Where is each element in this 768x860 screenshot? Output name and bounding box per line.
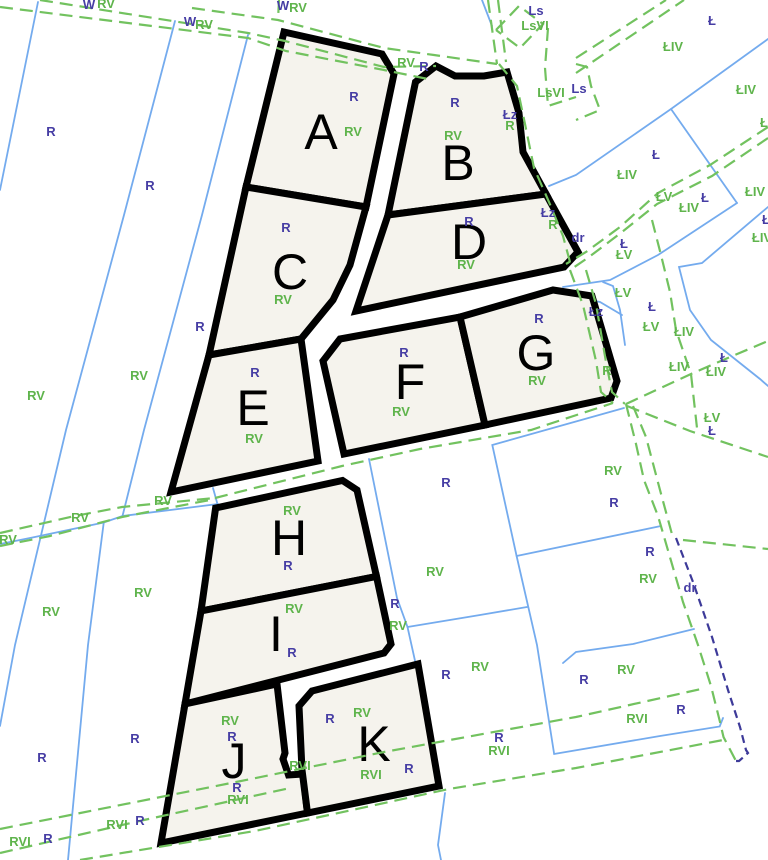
svg-text:Ł: Ł — [762, 212, 768, 227]
svg-text:RVI: RVI — [106, 817, 127, 832]
svg-text:RV: RV — [221, 713, 239, 728]
svg-text:RV: RV — [0, 532, 17, 547]
svg-text:R: R — [450, 95, 460, 110]
svg-text:R: R — [404, 761, 414, 776]
svg-text:RV: RV — [42, 604, 60, 619]
svg-text:ŁIV: ŁIV — [617, 167, 638, 182]
svg-text:R: R — [135, 813, 145, 828]
svg-text:ŁV: ŁV — [656, 189, 673, 204]
svg-text:ŁV: ŁV — [616, 247, 633, 262]
svg-text:RV: RV — [154, 493, 172, 508]
svg-text:RVI: RVI — [9, 834, 30, 849]
svg-text:A: A — [304, 104, 338, 160]
svg-text:LsVI: LsVI — [521, 18, 548, 33]
svg-text:ŁIV: ŁIV — [679, 200, 700, 215]
svg-text:Ł: Ł — [708, 423, 716, 438]
svg-text:R: R — [505, 118, 515, 133]
svg-text:dr: dr — [684, 580, 697, 595]
svg-text:RV: RV — [444, 128, 462, 143]
svg-text:ŁV: ŁV — [643, 319, 660, 334]
svg-text:dr: dr — [572, 230, 585, 245]
svg-text:B: B — [441, 135, 474, 191]
svg-text:R: R — [676, 702, 686, 717]
svg-text:ŁV: ŁV — [615, 285, 632, 300]
svg-text:RVI: RVI — [360, 767, 381, 782]
svg-text:R: R — [250, 365, 260, 380]
svg-text:RVI: RVI — [626, 711, 647, 726]
svg-text:W: W — [83, 0, 96, 12]
svg-text:RV: RV — [471, 659, 489, 674]
svg-text:F: F — [395, 354, 426, 410]
svg-text:RV: RV — [457, 257, 475, 272]
svg-text:E: E — [236, 380, 269, 436]
svg-text:RV: RV — [344, 124, 362, 139]
svg-text:ŁIV: ŁIV — [669, 359, 690, 374]
svg-text:RV: RV — [97, 0, 115, 11]
svg-text:RV: RV — [617, 662, 635, 677]
svg-text:R: R — [645, 544, 655, 559]
svg-text:Ls: Ls — [571, 81, 586, 96]
svg-text:R: R — [281, 220, 291, 235]
svg-text:R: R — [399, 345, 409, 360]
svg-text:R: R — [390, 596, 400, 611]
svg-text:Ł: Ł — [652, 147, 660, 162]
svg-text:RV: RV — [134, 585, 152, 600]
svg-text:RV: RV — [71, 510, 89, 525]
svg-text:Ł: Ł — [708, 13, 716, 28]
svg-text:Ł: Ł — [648, 299, 656, 314]
svg-text:RV: RV — [397, 55, 415, 70]
svg-text:RV: RV — [639, 571, 657, 586]
svg-text:LsVI: LsVI — [537, 85, 564, 100]
svg-text:RVI: RVI — [227, 792, 248, 807]
svg-text:RV: RV — [130, 368, 148, 383]
svg-text:RV: RV — [289, 0, 307, 15]
svg-text:RV: RV — [426, 564, 444, 579]
svg-text:R: R — [145, 178, 155, 193]
svg-text:ŁIV: ŁIV — [674, 324, 695, 339]
svg-text:R: R — [43, 831, 53, 846]
svg-text:RV: RV — [283, 503, 301, 518]
svg-text:RV: RV — [245, 431, 263, 446]
svg-text:RVI: RVI — [488, 743, 509, 758]
svg-text:ŁIV: ŁIV — [752, 230, 768, 245]
svg-text:R: R — [464, 214, 474, 229]
svg-text:R: R — [283, 558, 293, 573]
svg-text:Ł: Ł — [760, 115, 768, 130]
svg-text:R: R — [349, 89, 359, 104]
svg-text:R: R — [579, 672, 589, 687]
svg-text:R: R — [441, 475, 451, 490]
svg-text:RV: RV — [604, 463, 622, 478]
svg-text:Łz: Łz — [589, 304, 604, 319]
svg-text:RV: RV — [389, 618, 407, 633]
svg-text:Ł: Ł — [701, 190, 709, 205]
svg-text:RVI: RVI — [289, 758, 310, 773]
svg-text:R: R — [609, 495, 619, 510]
svg-text:RV: RV — [285, 601, 303, 616]
svg-text:I: I — [269, 606, 283, 662]
svg-text:R: R — [602, 363, 612, 378]
svg-text:R: R — [548, 217, 558, 232]
svg-text:R: R — [534, 311, 544, 326]
svg-text:RV: RV — [528, 373, 546, 388]
svg-text:Ł: Ł — [720, 350, 728, 365]
svg-text:R: R — [46, 124, 56, 139]
svg-text:ŁIV: ŁIV — [663, 39, 684, 54]
svg-text:R: R — [130, 731, 140, 746]
svg-text:R: R — [287, 645, 297, 660]
svg-text:ŁIV: ŁIV — [736, 82, 757, 97]
svg-text:K: K — [357, 716, 390, 772]
svg-text:RV: RV — [392, 404, 410, 419]
svg-text:ŁIV: ŁIV — [706, 364, 727, 379]
svg-text:RV: RV — [27, 388, 45, 403]
svg-text:RV: RV — [274, 292, 292, 307]
svg-text:R: R — [37, 750, 47, 765]
svg-text:Ls: Ls — [528, 3, 543, 18]
svg-text:R: R — [419, 59, 429, 74]
svg-text:R: R — [325, 711, 335, 726]
svg-text:R: R — [227, 729, 237, 744]
svg-text:W: W — [277, 0, 290, 13]
svg-text:R: R — [195, 319, 205, 334]
svg-text:RV: RV — [195, 17, 213, 32]
svg-text:ŁIV: ŁIV — [745, 184, 766, 199]
svg-text:RV: RV — [353, 705, 371, 720]
svg-text:R: R — [441, 667, 451, 682]
